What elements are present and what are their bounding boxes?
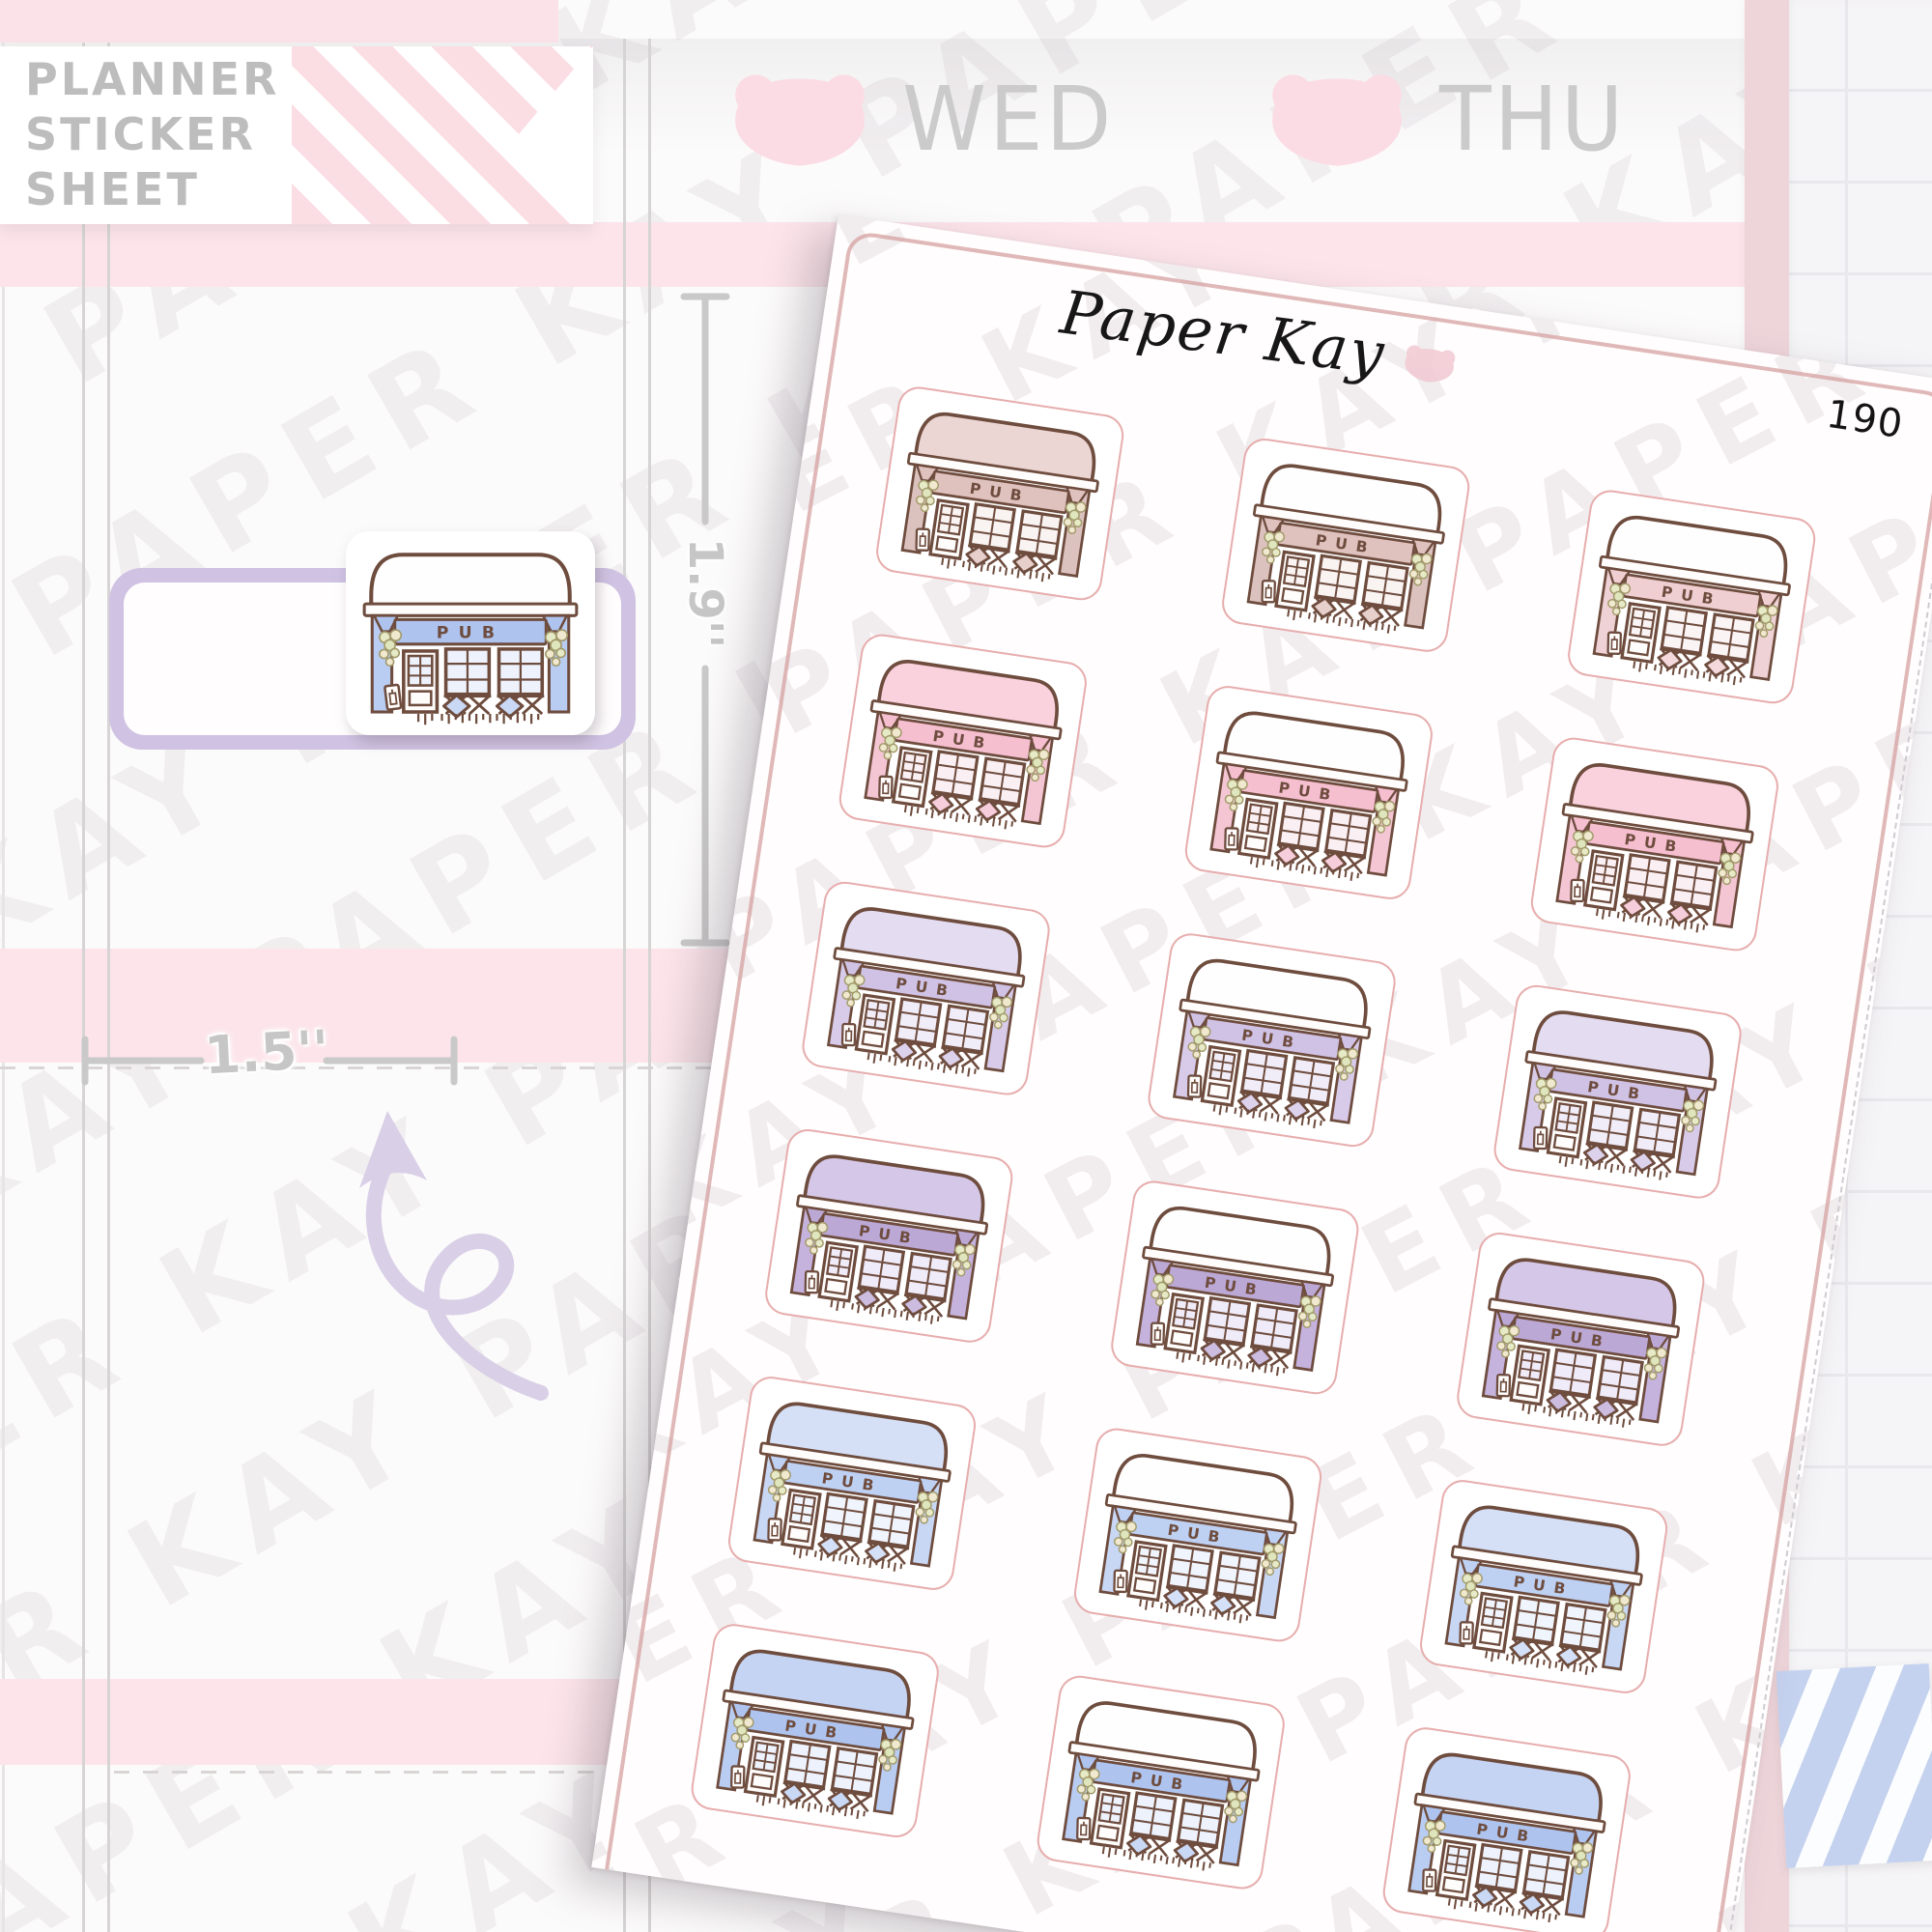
pub-art <box>1432 1490 1657 1684</box>
pub-art <box>740 1386 965 1580</box>
pub-art <box>1394 1737 1619 1931</box>
banner-line: PLANNER <box>25 52 279 107</box>
day-label: WED <box>902 67 1114 170</box>
bear-icon <box>1264 68 1410 170</box>
sheet-sticker <box>691 1624 939 1838</box>
planner-dashed-separator <box>114 1771 616 1774</box>
pub-art <box>702 1634 927 1828</box>
pink-tape-top <box>0 0 558 43</box>
banner-line: SHEET <box>25 162 279 217</box>
placed-pub-sticker <box>346 531 595 735</box>
sheet-sticker <box>1419 1479 1667 1693</box>
pub-art <box>1086 1437 1311 1632</box>
sheet-sticker <box>875 386 1123 601</box>
sheet-sticker <box>1457 1232 1705 1446</box>
pub-art <box>1579 499 1804 694</box>
sheet-sticker <box>1493 984 1742 1199</box>
bear-icon <box>726 68 873 170</box>
pub-art <box>777 1139 1002 1333</box>
pub-art <box>1505 995 1730 1189</box>
product-image: PUB <box>0 0 1932 1932</box>
pub-art <box>1196 696 1421 890</box>
sheet-sticker <box>1073 1428 1321 1642</box>
sheet-sticker <box>1037 1675 1285 1889</box>
day-header-wed: WED <box>726 68 1114 170</box>
pub-art <box>1159 943 1384 1137</box>
sheet-sticker <box>838 634 1087 848</box>
planner-column-line <box>107 39 110 1932</box>
day-label: THU <box>1439 67 1626 170</box>
height-measurement-label: 1.9'' <box>678 518 732 668</box>
sheet-sticker <box>1148 933 1396 1148</box>
pub-art <box>813 892 1038 1086</box>
pub-art <box>1542 747 1767 941</box>
sheet-sticker <box>727 1376 976 1590</box>
width-measurement-label: 1.5'' <box>197 1018 335 1086</box>
pub-art <box>888 396 1113 590</box>
pub-art <box>850 643 1075 838</box>
sheet-sticker <box>1111 1180 1359 1395</box>
bear-icon <box>1399 341 1460 387</box>
title-banner: PLANNER STICKER SHEET <box>0 46 593 224</box>
washi-tape <box>1776 1663 1932 1868</box>
pub-art <box>1048 1686 1273 1880</box>
sheet-sticker <box>1221 438 1469 652</box>
sheet-sticker <box>1567 490 1815 704</box>
pub-art <box>1122 1190 1348 1384</box>
planner-column-line <box>82 39 85 1932</box>
sheet-sticker <box>765 1128 1013 1343</box>
banner-title: PLANNER STICKER SHEET <box>25 52 279 217</box>
sheet-sticker <box>1530 737 1778 952</box>
sheet-sticker <box>1184 685 1433 899</box>
pub-art <box>357 541 583 725</box>
sheet-sticker <box>802 881 1050 1095</box>
sheet-sticker <box>1382 1727 1631 1932</box>
banner-line: STICKER <box>25 107 279 162</box>
pub-art <box>1468 1242 1693 1436</box>
pub-art <box>1234 448 1459 642</box>
striped-flag <box>292 46 593 224</box>
day-header-thu: THU <box>1264 68 1626 170</box>
